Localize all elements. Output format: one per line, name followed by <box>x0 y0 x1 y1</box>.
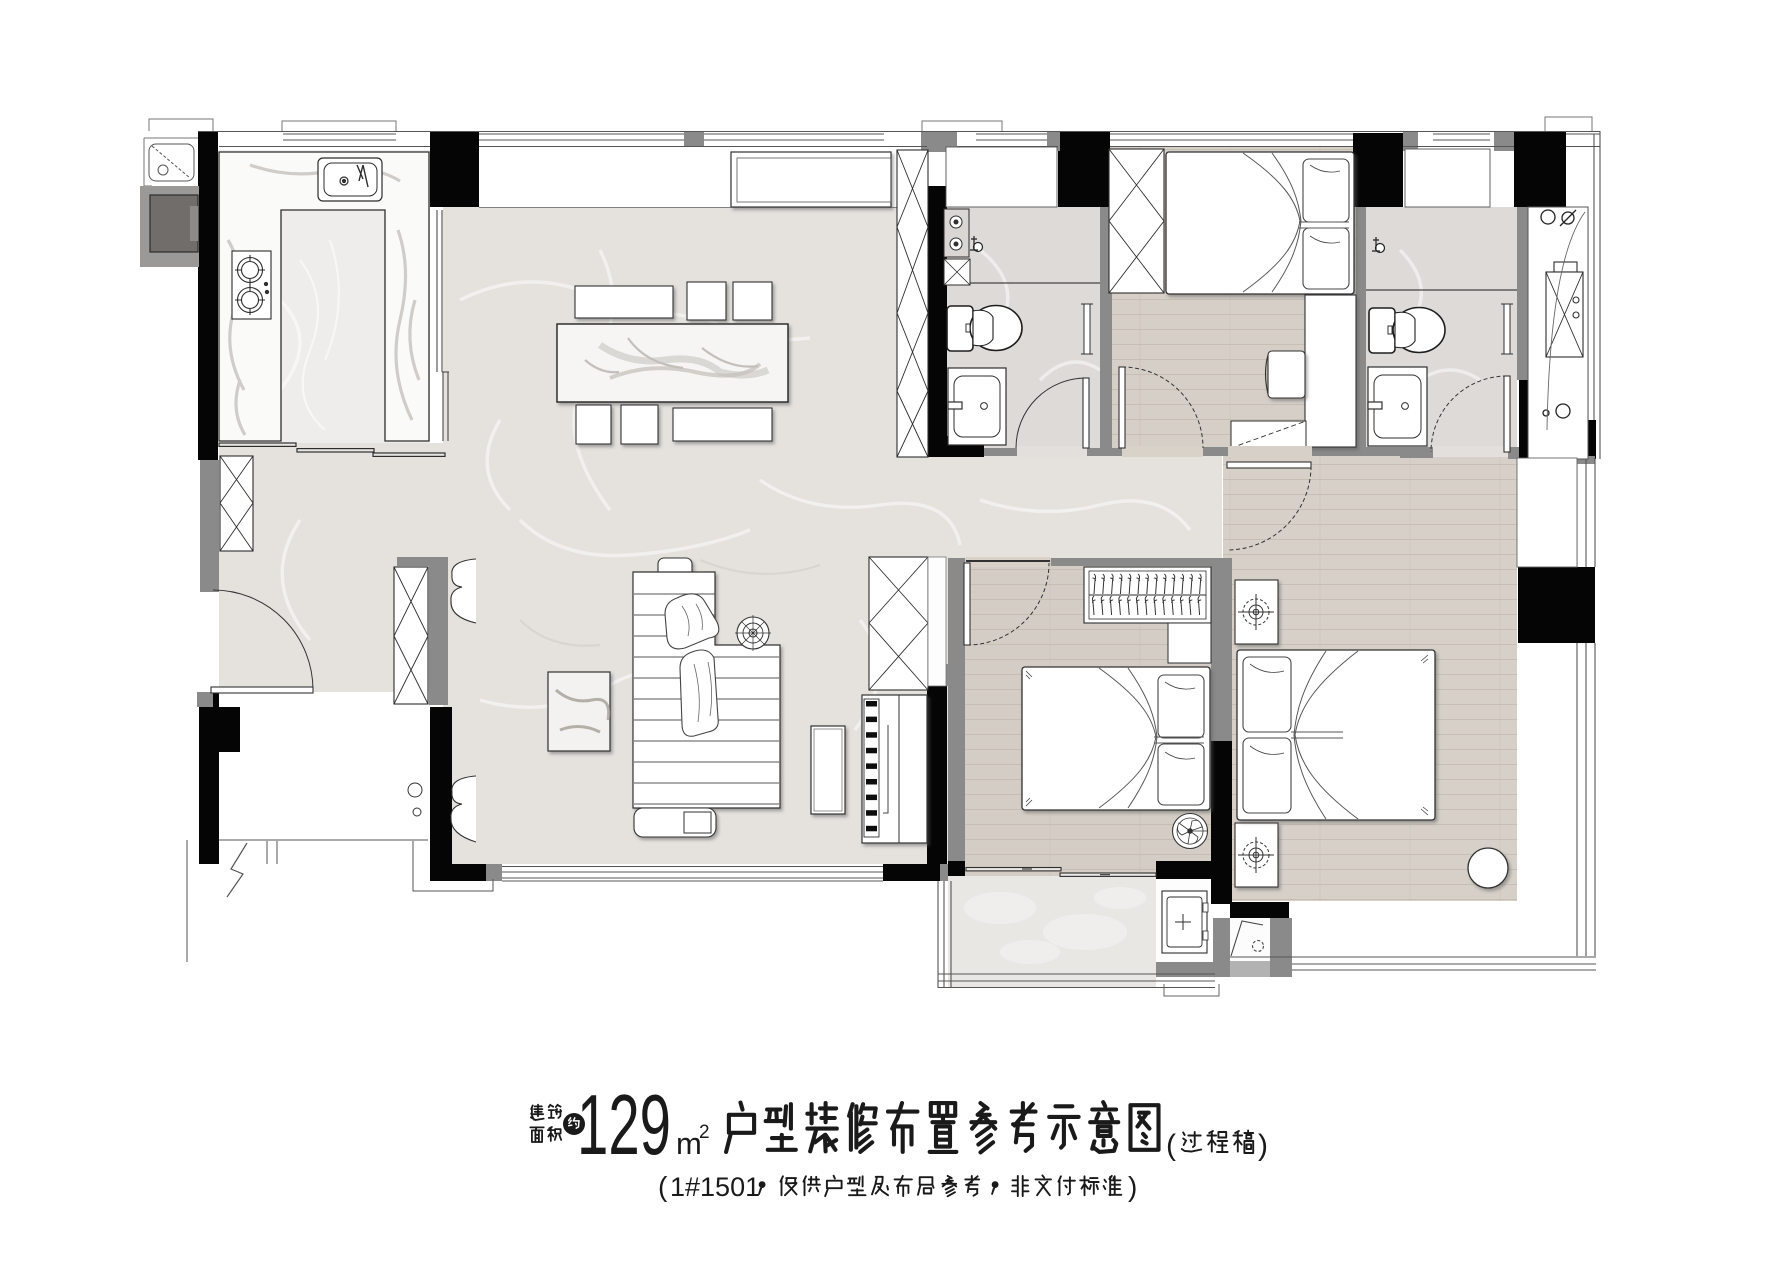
svg-text:): ) <box>1128 1171 1137 1202</box>
svg-text:2: 2 <box>699 1122 710 1143</box>
svg-text:1#1501: 1#1501 <box>670 1172 760 1202</box>
svg-text:129: 129 <box>577 1078 671 1173</box>
svg-text:): ) <box>1258 1129 1268 1162</box>
svg-text:(: ( <box>1166 1129 1176 1162</box>
svg-text:m: m <box>676 1126 702 1161</box>
svg-text:(: ( <box>658 1171 668 1202</box>
